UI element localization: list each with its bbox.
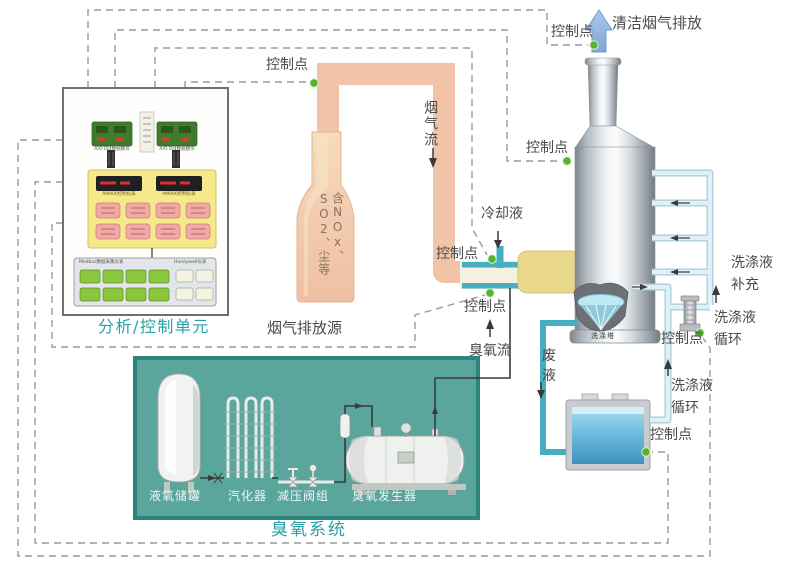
control-point-label-ozone: 控制点	[464, 299, 506, 315]
display-right-caption: AM900控制仪表	[156, 192, 202, 197]
analysis-unit-label: 分析/控制单元	[98, 318, 210, 336]
control-dot-flue	[310, 79, 318, 87]
ozone-generator-label: 臭氧发生器	[352, 490, 417, 504]
tower-label: 洗涤塔	[591, 332, 615, 340]
flue-source-label: 烟气排放源	[267, 320, 342, 337]
control-point-label-coolant: 控制点	[436, 246, 478, 262]
circulation-pump	[680, 296, 700, 331]
process-diagram: 控制点 控制点 控制点 控制点 控制点 控制点 控制点 清洁烟气排放 烟气流 含…	[0, 0, 800, 566]
coolant-label: 冷却液	[481, 206, 523, 222]
diagram-canvas	[0, 0, 800, 566]
circ-lower-line2: 循环	[671, 400, 699, 416]
control-dot-coolant	[488, 255, 496, 263]
control-dot-tank	[642, 448, 650, 456]
module-right-caption: A/O DI4数据模块	[153, 147, 201, 152]
module-left-caption: A/O DI4数据模块	[88, 147, 136, 152]
flue-content-label: 含NOx、SO2、尘等	[316, 192, 344, 300]
circ-lower-line1: 洗涤液	[671, 378, 713, 394]
lox-tank	[158, 374, 200, 493]
analysis-control-unit	[63, 88, 228, 315]
ozone-system-label: 臭氧系统	[271, 521, 347, 541]
makeup-label: 洗涤液补充	[731, 253, 773, 296]
control-point-label-flue: 控制点	[266, 57, 308, 73]
io-panel-caption: Modbus数据采集仪表	[79, 260, 124, 265]
flue-duct	[460, 251, 580, 293]
control-dot-clean-gas	[590, 41, 598, 49]
control-dot-ozone	[486, 289, 494, 297]
waste-liquid-line1: 废	[542, 348, 556, 364]
circ-upper-line1: 洗涤液	[714, 310, 756, 326]
makeup-line2: 补充	[731, 277, 759, 293]
wash-tank	[566, 394, 650, 470]
clean-gas-label: 清洁烟气排放	[612, 15, 702, 32]
circulation-label-lower: 洗涤液循环	[671, 376, 713, 419]
io-panel-caption-right: Honeywell仪表	[174, 260, 206, 265]
circ-upper-line2: 循环	[714, 332, 742, 348]
valve-group-label: 减压阀组	[277, 490, 329, 504]
control-dot-tower	[563, 157, 571, 165]
circulation-label-upper: 洗涤液循环	[714, 308, 756, 351]
control-point-label-pump: 控制点	[661, 331, 703, 347]
control-point-label-clean-gas: 控制点	[551, 24, 593, 40]
control-point-label-tower: 控制点	[526, 140, 568, 156]
flue-flow-label: 烟气流	[422, 100, 438, 148]
display-left-caption: AM900控制仪表	[96, 192, 142, 197]
vaporizer-label: 汽化器	[228, 490, 267, 504]
control-point-label-tank: 控制点	[650, 427, 692, 443]
makeup-line1: 洗涤液	[731, 255, 773, 271]
waste-liquid-line2: 液	[542, 368, 556, 384]
waste-liquid-label: 废液	[542, 347, 556, 386]
lox-tank-label: 液氧储罐	[149, 490, 201, 504]
ozone-flow-label: 臭氧流	[469, 343, 511, 359]
feed-filter	[340, 414, 350, 438]
